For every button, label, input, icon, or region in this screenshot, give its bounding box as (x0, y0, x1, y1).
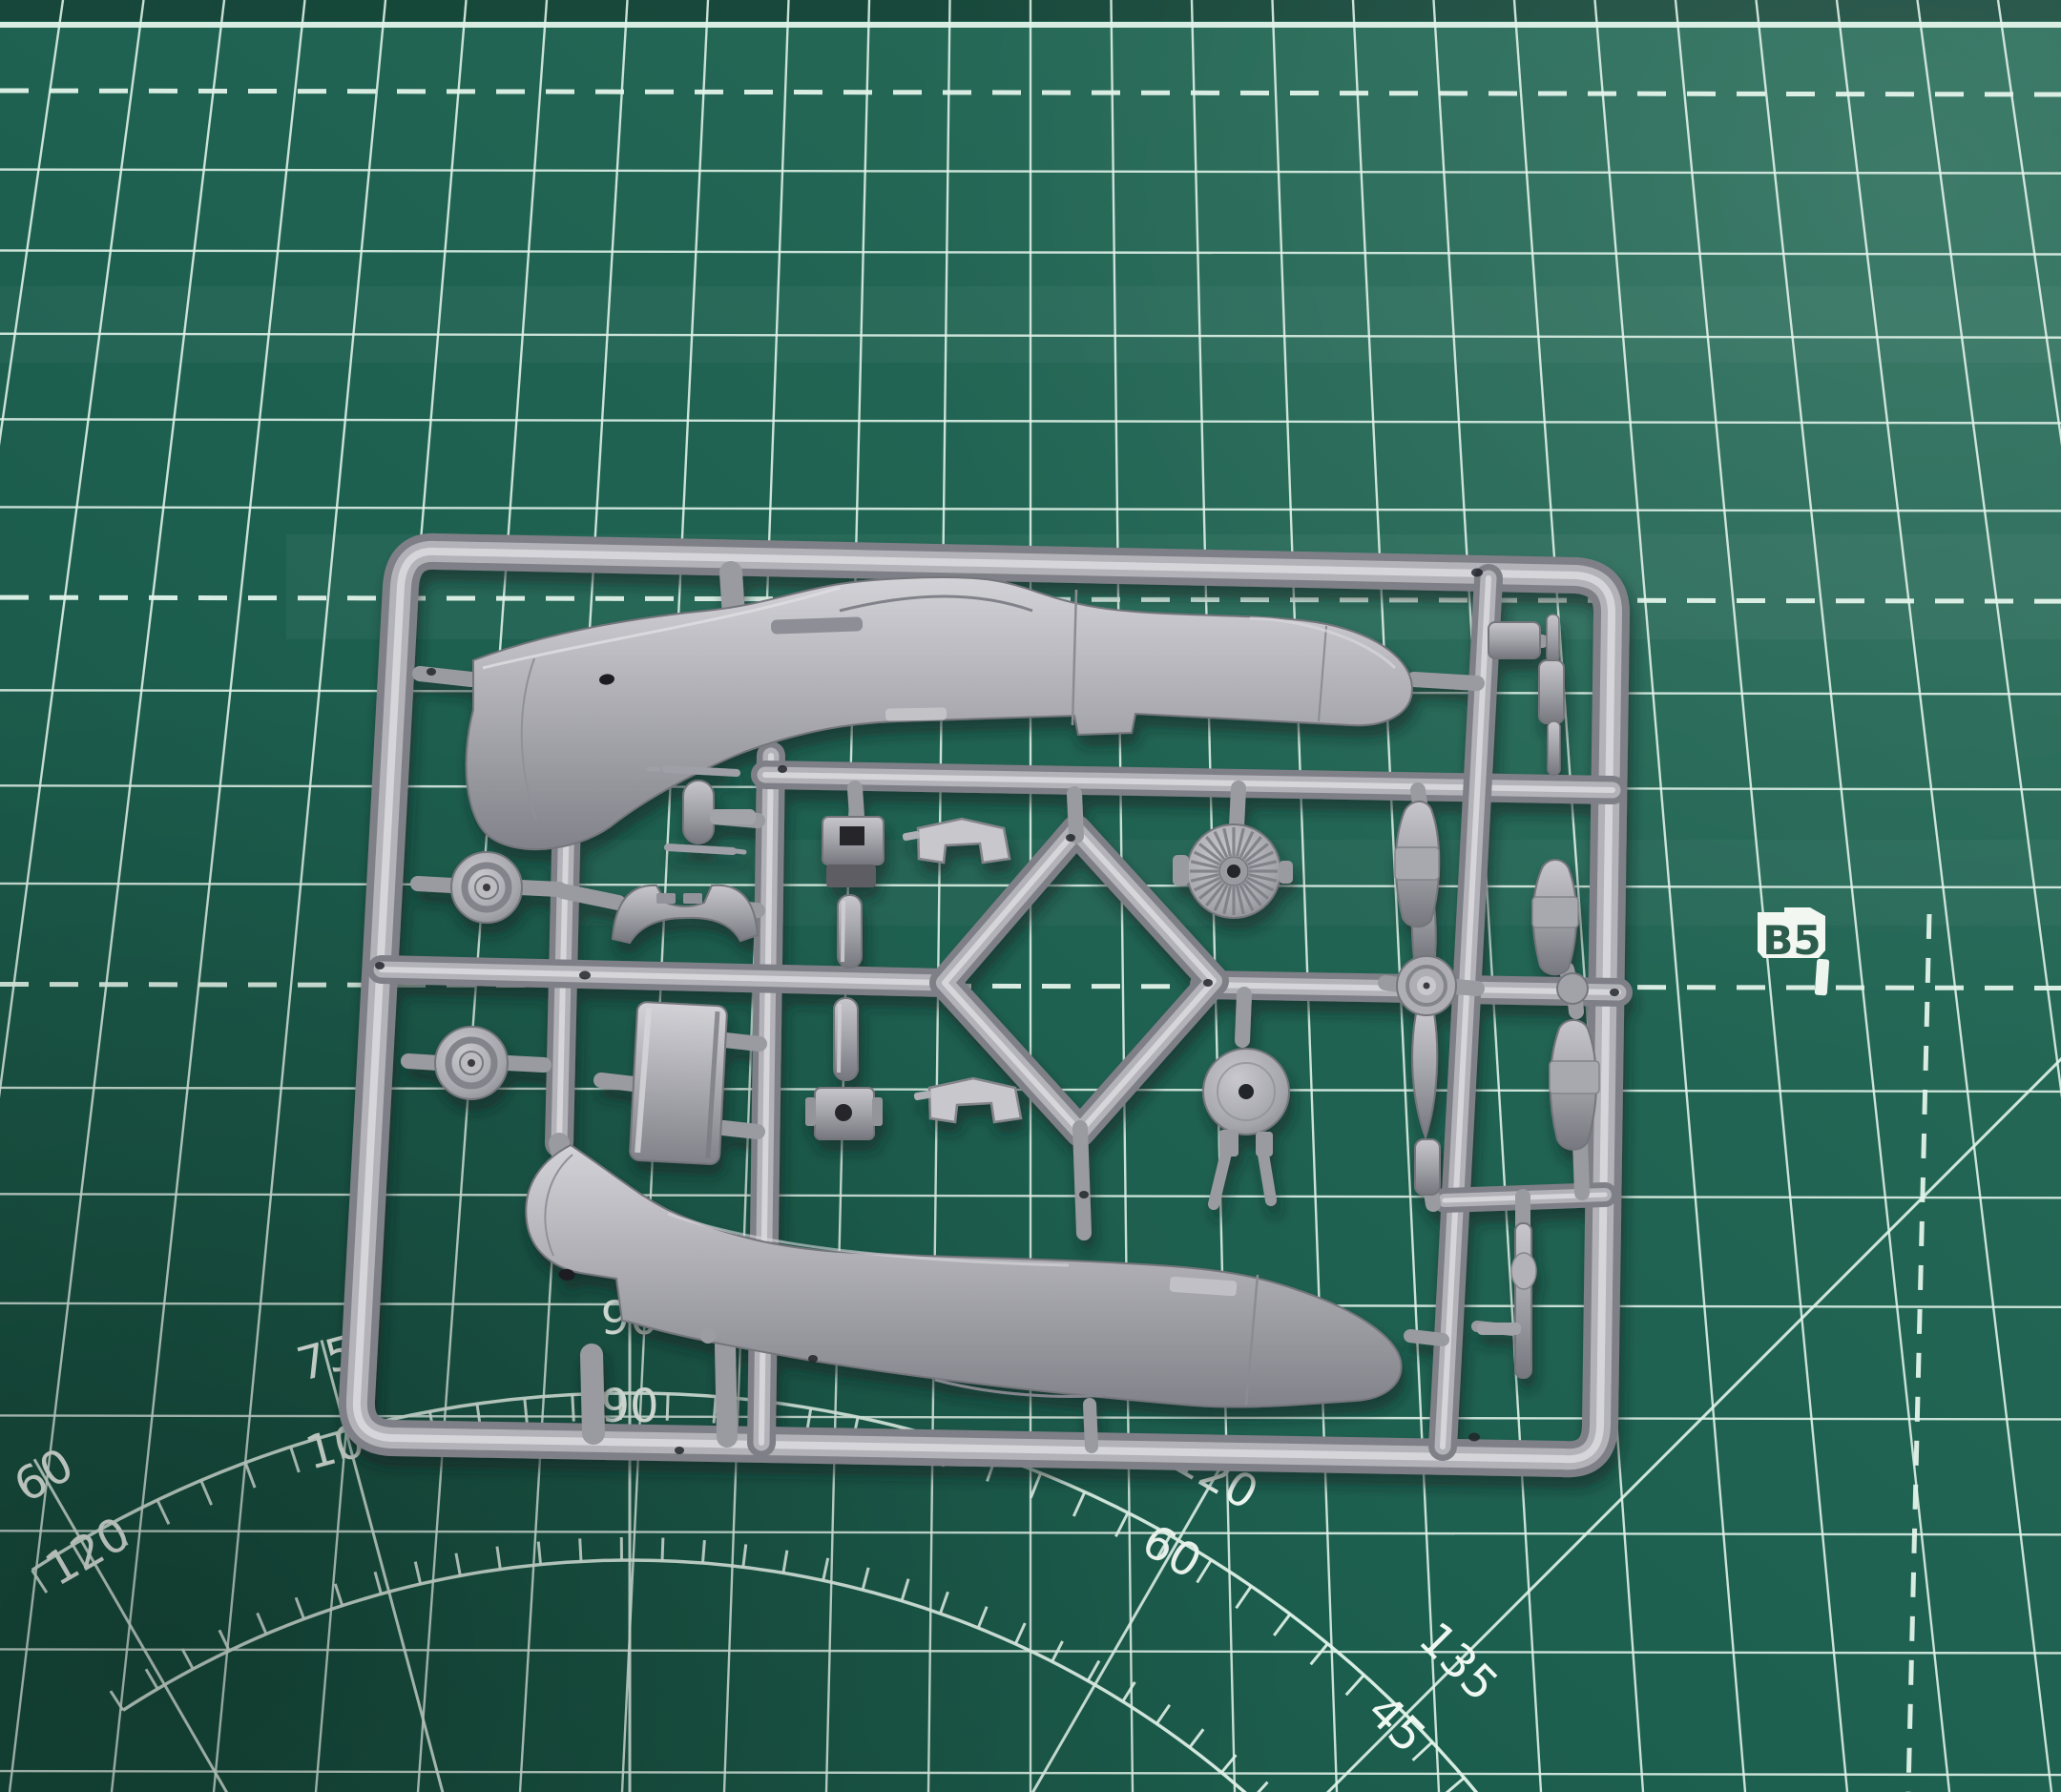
photo-canvas: 601207510590901206013545 B5 (0, 0, 2061, 1792)
bulkhead-block-2 (805, 1088, 883, 1139)
wheel-part-2 (435, 1027, 508, 1099)
mat-size-label: B5 (1762, 917, 1821, 964)
photo-model-sprue-on-cutting-mat: 601207510590901206013545 B5 (0, 0, 2061, 1792)
exhaust-tube-2 (834, 998, 858, 1080)
b5-badge-tick (1815, 959, 1830, 996)
sprue-gate-cylinder (1415, 1139, 1440, 1195)
bulkhead-block-1 (822, 817, 884, 887)
fuselage-lower-knob (700, 1328, 716, 1344)
cowl-cylinder-part (630, 1002, 728, 1165)
drop-tank-half-1 (1395, 802, 1439, 927)
wheel-part-1 (451, 852, 522, 923)
exhaust-tube-1 (838, 895, 862, 968)
